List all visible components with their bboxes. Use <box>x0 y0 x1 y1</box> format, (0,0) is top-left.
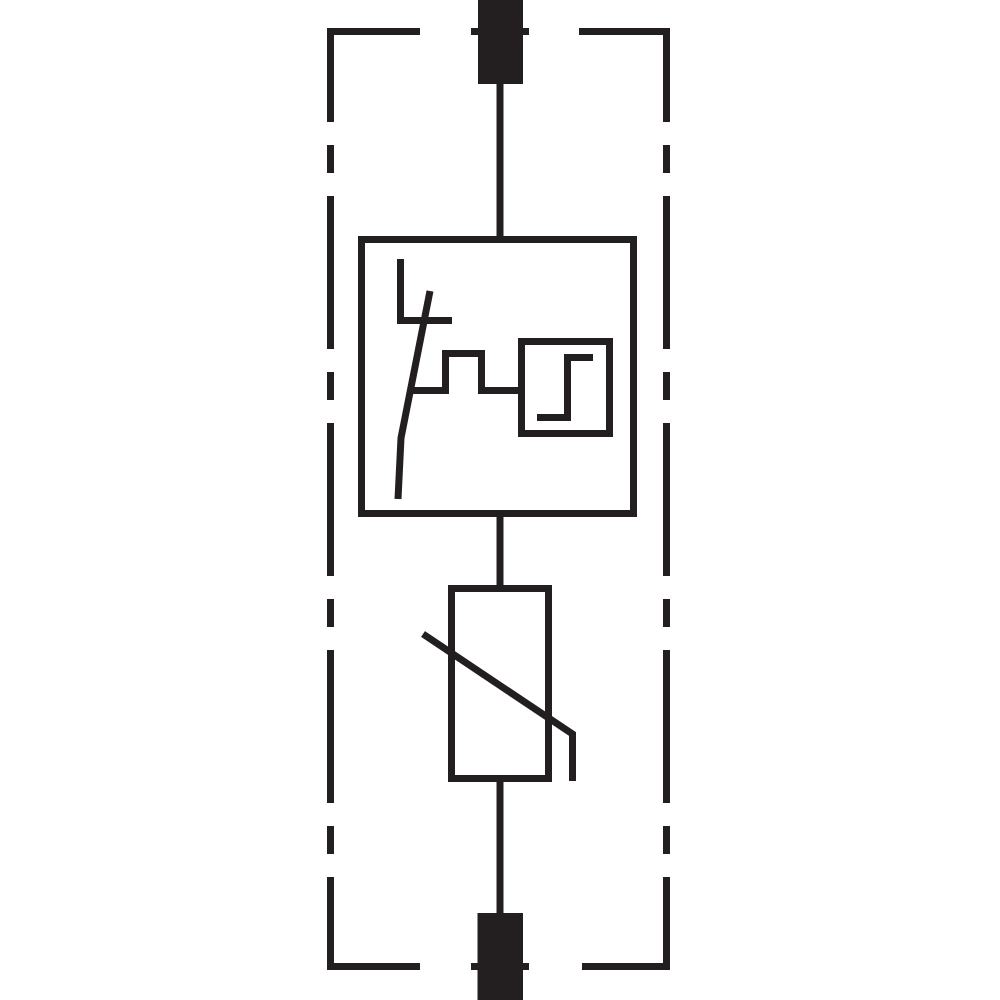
bottom-terminal-pin <box>478 913 524 1000</box>
circuit-lines <box>327 0 670 1000</box>
trip-signal-trace <box>408 354 519 391</box>
top-terminal-pin <box>478 0 523 84</box>
varistor-symbol <box>423 589 573 782</box>
thermal-disconnector-symbol <box>362 240 634 514</box>
step-function-icon <box>537 358 593 418</box>
diagram-canvas <box>0 0 1000 1000</box>
circuit-diagram <box>0 0 1000 1000</box>
